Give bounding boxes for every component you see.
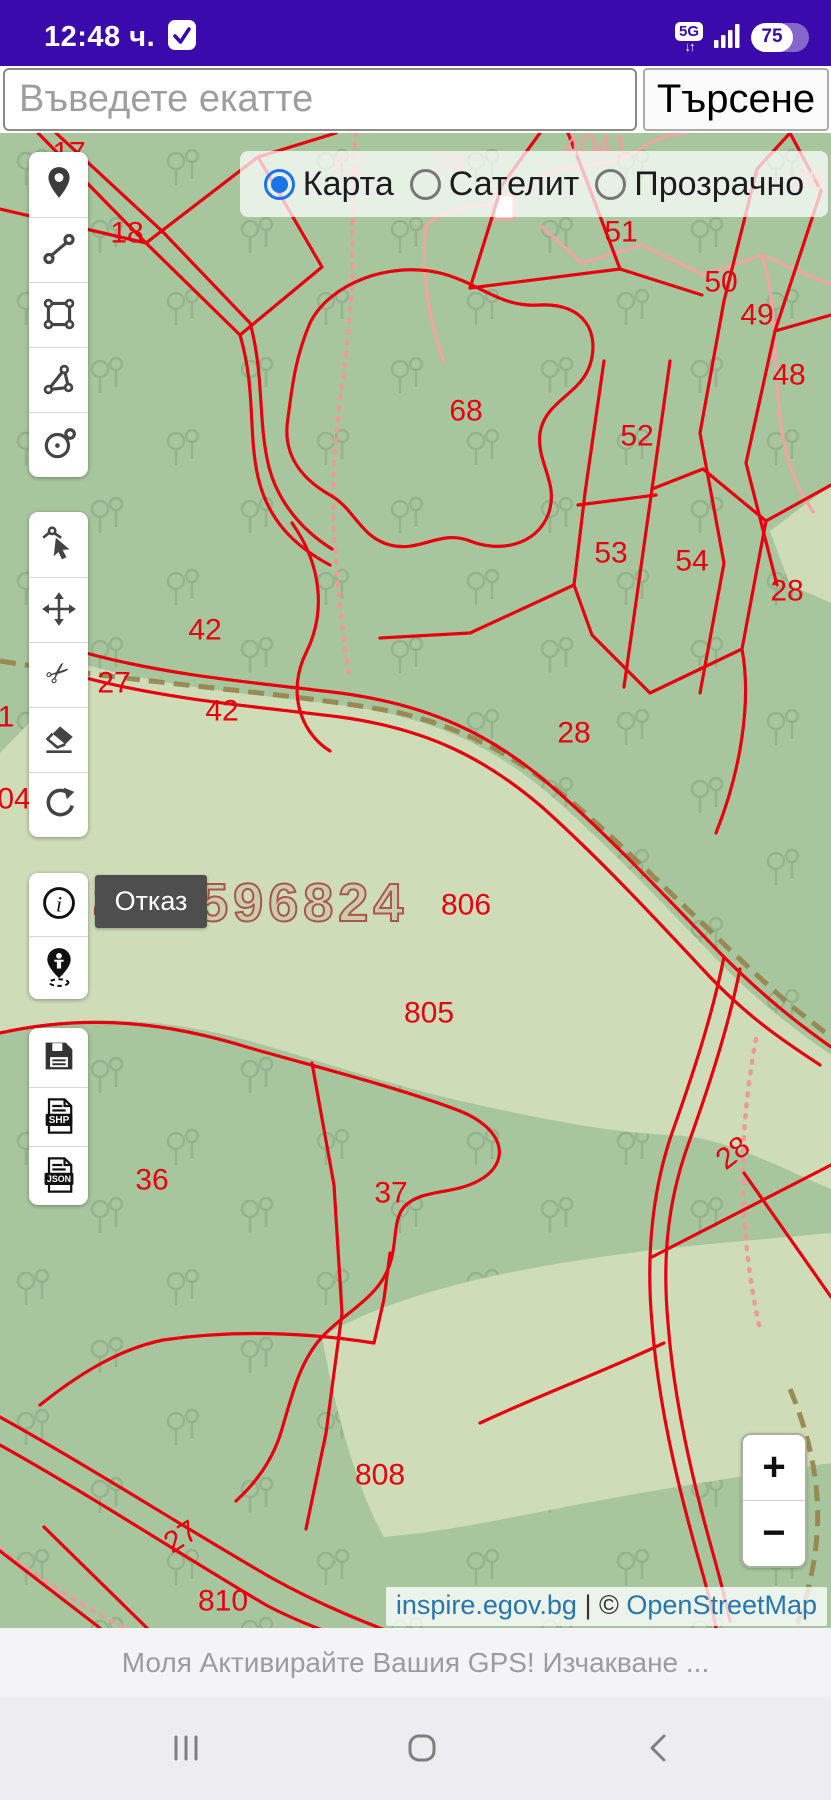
clock: 12:48 ч. <box>44 21 155 54</box>
file-json-icon: JSON <box>39 1155 79 1198</box>
eraser-icon <box>40 720 78 761</box>
parcel-label: 806 <box>441 889 491 922</box>
person-pin-icon <box>39 947 79 990</box>
battery-percent: 75 <box>751 23 793 52</box>
parcel-label: 50 <box>704 266 737 299</box>
parcel-label: 04 <box>0 783 31 816</box>
parcel-label: 810 <box>198 1585 248 1618</box>
toolbar-draw-group <box>29 152 88 477</box>
search-bar: Търсене <box>0 66 831 133</box>
radio-unselected-icon <box>410 169 441 200</box>
tool-draw-polygon[interactable] <box>29 347 88 412</box>
layer-option-satellite[interactable]: Сателит <box>410 165 579 204</box>
layer-switcher: Карта Сателит Прозрачно <box>240 151 828 217</box>
network-5g-icon: 5G ↓↑ <box>675 22 703 53</box>
tool-gps-locate[interactable] <box>29 936 88 999</box>
inspire-link[interactable]: inspire.egov.bg <box>396 1590 577 1620</box>
zoom-out-button[interactable]: − <box>743 1501 805 1567</box>
layer-option-map[interactable]: Карта <box>264 165 394 204</box>
tool-erase-feature[interactable] <box>29 707 88 772</box>
parcel-label: 51 <box>604 216 637 249</box>
nav-home-button[interactable] <box>402 1729 442 1769</box>
parcel-label: 1 <box>0 701 14 734</box>
parcel-label: 42 <box>205 695 238 728</box>
scissors-icon: ✂ <box>40 655 78 696</box>
tool-move-feature[interactable] <box>29 577 88 642</box>
map-canvas[interactable]: 0878596824 17186239404146515049486852535… <box>0 133 831 1628</box>
tool-feature-info[interactable]: i <box>29 873 88 936</box>
floppy-disk-icon <box>39 1036 79 1079</box>
polygon-nodes-icon <box>40 360 78 401</box>
parcel-label: 48 <box>772 359 805 392</box>
radio-selected-icon <box>264 169 295 200</box>
parcel-label: 28 <box>557 717 590 750</box>
radio-unselected-icon <box>595 169 626 200</box>
battery-icon: 75 <box>751 23 809 52</box>
tool-modify-feature[interactable] <box>29 512 88 577</box>
tool-save[interactable] <box>29 1028 88 1087</box>
svg-text:SHP: SHP <box>48 1115 69 1126</box>
tool-place-marker[interactable] <box>29 152 88 217</box>
nav-back-button[interactable] <box>639 1729 679 1769</box>
android-navigation-bar <box>0 1697 831 1800</box>
toolbar-edit-group: ✂ <box>29 512 88 837</box>
line-segment-icon <box>40 230 78 271</box>
svg-text:JSON: JSON <box>46 1174 70 1184</box>
back-icon <box>644 1733 674 1766</box>
file-shp-icon: SHP <box>39 1096 79 1139</box>
parcel-label: 18 <box>110 217 143 250</box>
gps-message-text: Моля Активирайте Вашия GPS! Изчакване ..… <box>122 1647 709 1679</box>
zoom-in-button[interactable]: + <box>743 1435 805 1501</box>
recents-icon <box>171 1733 201 1766</box>
parcel-label: 49 <box>740 299 773 332</box>
parcel-label: 42 <box>188 614 221 647</box>
openstreetmap-link[interactable]: OpenStreetMap <box>626 1590 817 1620</box>
parcel-label: 37 <box>374 1177 407 1210</box>
parcel-label: 54 <box>675 545 708 578</box>
svg-text:i: i <box>55 891 61 916</box>
circle-node-icon <box>40 425 78 466</box>
ekatte-search-input[interactable] <box>3 68 637 131</box>
search-button[interactable]: Търсене <box>643 68 829 131</box>
tool-cut-feature[interactable]: ✂ <box>29 642 88 707</box>
svg-text:✂: ✂ <box>40 655 78 693</box>
parcel-label: 805 <box>404 997 454 1030</box>
pointer-node-icon <box>40 524 78 565</box>
home-icon <box>407 1733 437 1766</box>
parcel-label: 36 <box>135 1164 168 1197</box>
parcel-label: 808 <box>355 1459 405 1492</box>
nav-recents-button[interactable] <box>166 1729 206 1769</box>
parcel-label: 53 <box>594 537 627 570</box>
cancel-button[interactable]: Отказ <box>95 875 207 928</box>
gps-message-bar: Моля Активирайте Вашия GPS! Изчакване ..… <box>0 1628 831 1697</box>
tool-rotate-feature[interactable] <box>29 772 88 837</box>
signal-bars-icon <box>714 21 740 54</box>
tool-draw-rectangle[interactable] <box>29 282 88 347</box>
parcel-label: 27 <box>97 667 130 700</box>
marker-pin-icon <box>40 164 78 205</box>
checkbox-notification-icon <box>167 19 197 56</box>
toolbar-export-group: SHP JSON <box>29 1028 88 1205</box>
rectangle-nodes-icon <box>40 295 78 336</box>
tool-draw-line[interactable] <box>29 217 88 282</box>
layer-option-transparent[interactable]: Прозрачно <box>595 165 804 204</box>
move-arrows-icon <box>40 590 78 631</box>
rotate-arrow-icon <box>40 785 78 826</box>
status-bar: 12:48 ч. 5G ↓↑ 75 <box>0 0 831 66</box>
tool-export-shp[interactable]: SHP <box>29 1087 88 1146</box>
tool-export-json[interactable]: JSON <box>29 1146 88 1205</box>
map-attribution: inspire.egov.bg | © OpenStreetMap <box>386 1587 827 1626</box>
parcel-label: 68 <box>449 395 482 428</box>
parcel-label: 28 <box>770 575 803 608</box>
zoom-control: + − <box>741 1433 807 1568</box>
toolbar-info-group: i <box>29 873 88 999</box>
parcel-label: 52 <box>620 420 653 453</box>
tool-draw-circle[interactable] <box>29 412 88 477</box>
info-icon: i <box>39 883 79 926</box>
